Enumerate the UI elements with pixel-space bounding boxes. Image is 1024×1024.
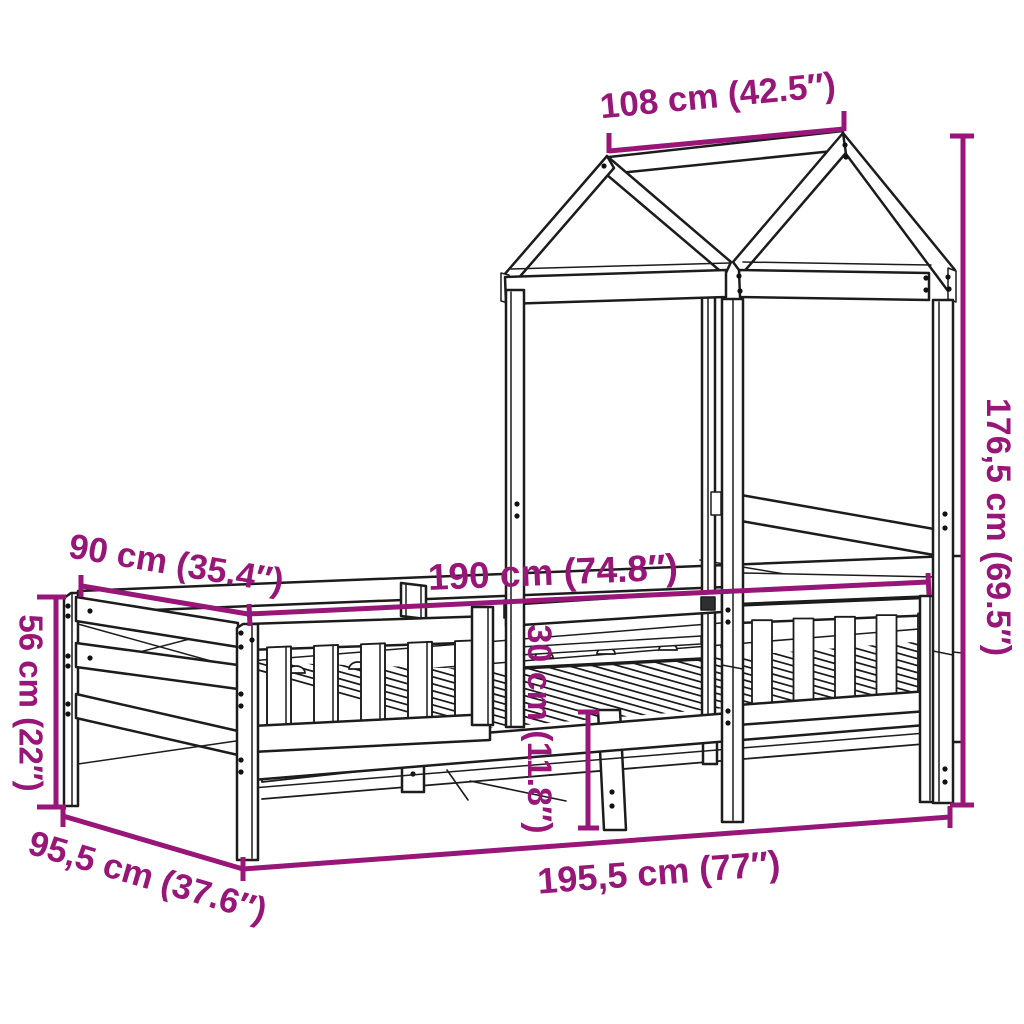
svg-text:56 cm (22″): 56 cm (22″)	[12, 614, 49, 791]
svg-text:30 cm (11.8″): 30 cm (11.8″)	[520, 624, 558, 833]
svg-text:176,5 cm (69.5″): 176,5 cm (69.5″)	[979, 398, 1017, 656]
